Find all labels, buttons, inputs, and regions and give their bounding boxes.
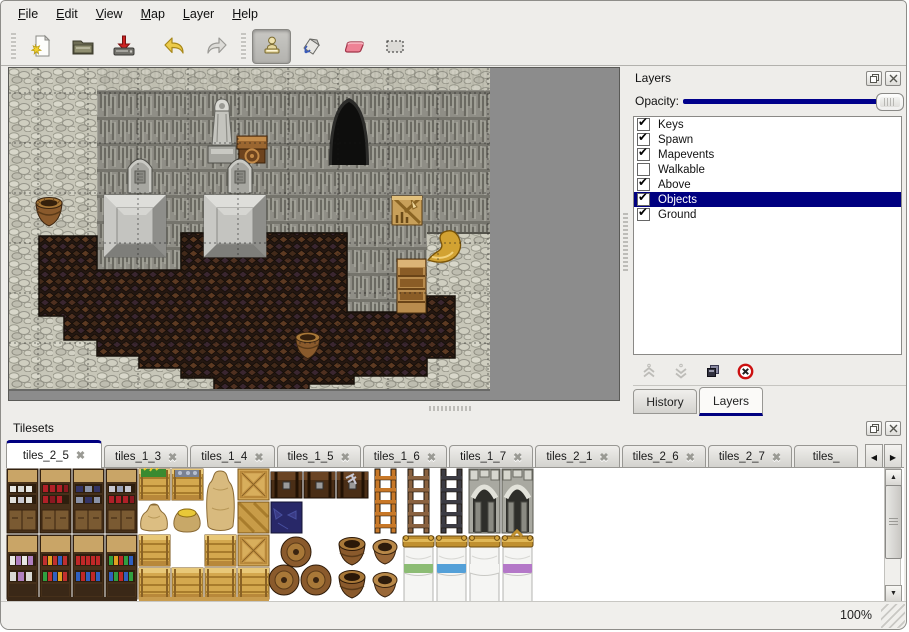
tileset-canvas[interactable] bbox=[6, 468, 876, 603]
menu-layer[interactable]: Layer bbox=[174, 3, 223, 25]
menu-view[interactable]: View bbox=[87, 3, 132, 25]
tileset-tab-label: tiles_1_5 bbox=[288, 451, 334, 463]
layer-row[interactable]: Objects bbox=[634, 192, 901, 207]
float-panel-button[interactable] bbox=[866, 71, 882, 86]
delete-layer-button[interactable] bbox=[735, 361, 755, 381]
statusbar: 100% bbox=[1, 601, 906, 629]
layer-visibility-checkbox[interactable] bbox=[637, 148, 650, 161]
opacity-row: Opacity: bbox=[631, 89, 904, 113]
layer-actions bbox=[633, 357, 906, 386]
raise-layer-icon bbox=[641, 363, 657, 379]
layer-row[interactable]: Walkable bbox=[634, 162, 901, 177]
tab-layers[interactable]: Layers bbox=[699, 387, 763, 416]
toolbar-grip[interactable] bbox=[11, 33, 16, 59]
tileset-tab-label: tiles_2_1 bbox=[546, 451, 592, 463]
lower-layer-button[interactable] bbox=[671, 361, 691, 381]
close-tab-icon[interactable]: ✖ bbox=[599, 451, 608, 464]
tileset-tab-label: tiles_2_5 bbox=[23, 450, 69, 462]
close-tab-icon[interactable]: ✖ bbox=[254, 451, 263, 464]
toolbar bbox=[1, 27, 906, 66]
close-tab-icon[interactable]: ✖ bbox=[513, 451, 522, 464]
eraser-icon bbox=[341, 33, 367, 59]
close-panel-button[interactable] bbox=[885, 71, 901, 86]
menu-map[interactable]: Map bbox=[132, 3, 174, 25]
tileset-tab-label: tiles_2_7 bbox=[719, 451, 765, 463]
save-button[interactable] bbox=[104, 29, 143, 64]
stamp-icon bbox=[259, 33, 285, 59]
float-panel-icon bbox=[870, 74, 879, 83]
horizontal-splitter[interactable] bbox=[1, 401, 907, 417]
stone-platform-object bbox=[204, 195, 266, 257]
opacity-slider-handle[interactable] bbox=[876, 93, 904, 111]
layer-name: Spawn bbox=[658, 134, 693, 146]
layers-panel-title: Layers bbox=[635, 71, 671, 85]
scroll-up-icon[interactable]: ▲ bbox=[885, 469, 902, 486]
zoom-level: 100% bbox=[840, 608, 872, 622]
close-tab-icon[interactable]: ✖ bbox=[427, 451, 436, 464]
selection-rectangle-icon bbox=[382, 33, 408, 59]
tileset-tab[interactable]: tiles_1_6 ✖ bbox=[363, 445, 447, 468]
menu-help[interactable]: Help bbox=[223, 3, 267, 25]
layer-list: Keys Spawn Mapevents Walkable Above Obje… bbox=[633, 116, 902, 355]
map-bottom-edge bbox=[9, 389, 490, 391]
undo-yellow-arrow-icon bbox=[162, 33, 188, 59]
opacity-label: Opacity: bbox=[635, 94, 683, 108]
close-panel-icon bbox=[889, 74, 898, 83]
layer-row[interactable]: Above bbox=[634, 177, 901, 192]
tileset-tab[interactable]: tiles_ bbox=[794, 445, 858, 468]
layer-visibility-checkbox[interactable] bbox=[637, 208, 650, 221]
tileset-tab[interactable]: tiles_1_5 ✖ bbox=[277, 445, 361, 468]
layer-row[interactable]: Spawn bbox=[634, 132, 901, 147]
duplicate-layer-icon bbox=[705, 363, 721, 379]
tilesets-panel-title: Tilesets bbox=[13, 421, 54, 435]
layer-name: Ground bbox=[658, 209, 696, 221]
tilesets-panel-titlebar: Tilesets bbox=[6, 418, 904, 438]
eraser-tool-button[interactable] bbox=[334, 29, 373, 64]
raise-layer-button[interactable] bbox=[639, 361, 659, 381]
duplicate-layer-button[interactable] bbox=[703, 361, 723, 381]
paint-bucket-icon bbox=[300, 33, 326, 59]
close-tab-icon[interactable]: ✖ bbox=[772, 451, 781, 464]
float-panel-icon bbox=[870, 424, 879, 433]
redo-gray-arrow-icon bbox=[203, 33, 229, 59]
redo-button[interactable] bbox=[196, 29, 235, 64]
splitter-grip[interactable] bbox=[429, 406, 473, 411]
layer-name: Objects bbox=[658, 194, 697, 206]
tileset-tab-label: tiles_1_3 bbox=[115, 451, 161, 463]
undo-button[interactable] bbox=[155, 29, 194, 64]
layer-name: Mapevents bbox=[658, 149, 714, 161]
tileset-tab-label: tiles_1_6 bbox=[374, 451, 420, 463]
scrollbar-thumb[interactable] bbox=[885, 485, 902, 559]
save-drive-red-arrow-icon bbox=[111, 33, 137, 59]
layers-panel-titlebar: Layers bbox=[631, 67, 904, 89]
scroll-down-icon[interactable]: ▼ bbox=[885, 585, 902, 602]
open-button[interactable] bbox=[63, 29, 102, 64]
menu-file[interactable]: File bbox=[9, 3, 47, 25]
resize-grip[interactable] bbox=[881, 604, 905, 628]
menu-edit[interactable]: Edit bbox=[47, 3, 87, 25]
layer-row[interactable]: Keys bbox=[634, 117, 901, 132]
opacity-slider-track[interactable] bbox=[683, 99, 892, 104]
gravestone-object bbox=[128, 159, 152, 193]
tileset-tab[interactable]: tiles_1_7 ✖ bbox=[449, 445, 533, 468]
tileset-tab-bar: tiles_2_5 ✖ tiles_1_3 ✖ tiles_1_4 ✖ tile… bbox=[6, 440, 904, 468]
map-canvas[interactable] bbox=[9, 68, 617, 398]
tileset-tab[interactable]: tiles_2_1 ✖ bbox=[535, 445, 619, 468]
layer-name: Above bbox=[658, 179, 691, 191]
float-panel-button[interactable] bbox=[866, 421, 882, 436]
tileset-tab[interactable]: tiles_1_3 ✖ bbox=[104, 445, 188, 468]
splitter-grip[interactable] bbox=[623, 213, 628, 271]
menubar: File Edit View Map Layer Help bbox=[1, 1, 906, 27]
layer-row[interactable]: Ground bbox=[634, 207, 901, 222]
cabinet-object bbox=[397, 259, 426, 313]
close-panel-button[interactable] bbox=[885, 421, 901, 436]
tileset-tab-label: tiles_1_7 bbox=[460, 451, 506, 463]
close-tab-icon[interactable]: ✖ bbox=[168, 451, 177, 464]
close-tab-icon[interactable]: ✖ bbox=[686, 451, 695, 464]
lower-layer-icon bbox=[673, 363, 689, 379]
layers-panel: Layers Opacity: bbox=[631, 67, 904, 415]
toolbar-grip[interactable] bbox=[241, 33, 246, 59]
tileset-tab-label: tiles_2_6 bbox=[633, 451, 679, 463]
layer-row[interactable]: Mapevents bbox=[634, 147, 901, 162]
close-tab-icon[interactable]: ✖ bbox=[341, 451, 350, 464]
map-view[interactable] bbox=[8, 67, 620, 401]
select-tool-button[interactable] bbox=[375, 29, 414, 64]
stamp-tool-button[interactable] bbox=[252, 29, 291, 64]
broken-crate-object bbox=[392, 196, 422, 225]
tileset-scrollbar[interactable]: ▲ ▼ bbox=[884, 468, 901, 603]
tileset-tab[interactable]: tiles_2_7 ✖ bbox=[708, 445, 792, 468]
tileset-tab[interactable]: tiles_2_6 ✖ bbox=[622, 445, 706, 468]
stone-platform-object bbox=[104, 195, 166, 257]
close-panel-icon bbox=[889, 424, 898, 433]
tileset-tab[interactable]: tiles_1_4 ✖ bbox=[190, 445, 274, 468]
tileset-tab[interactable]: tiles_2_5 ✖ bbox=[6, 440, 102, 468]
close-tab-icon[interactable]: ✖ bbox=[76, 449, 85, 462]
tileset-tab-label: tiles_ bbox=[813, 451, 840, 463]
tileset-tab-label: tiles_1_4 bbox=[201, 451, 247, 463]
tileset-content[interactable]: ▲ ▼ bbox=[6, 467, 904, 603]
fill-tool-button[interactable] bbox=[293, 29, 332, 64]
gravestone-object bbox=[228, 159, 252, 193]
new-page-star-icon bbox=[29, 33, 55, 59]
layer-name: Keys bbox=[658, 119, 684, 131]
delete-layer-icon bbox=[737, 363, 754, 380]
open-folder-icon bbox=[70, 33, 96, 59]
app-window: File Edit View Map Layer Help bbox=[0, 0, 907, 630]
new-file-button[interactable] bbox=[22, 29, 61, 64]
tab-label: Layers bbox=[713, 394, 749, 408]
tilesets-panel: Tilesets tiles_2_5 ✖ tiles_1_3 ✖ bbox=[6, 418, 904, 604]
opacity-slider[interactable] bbox=[683, 92, 900, 110]
vertical-splitter[interactable] bbox=[621, 67, 630, 415]
layer-name: Walkable bbox=[658, 164, 705, 176]
